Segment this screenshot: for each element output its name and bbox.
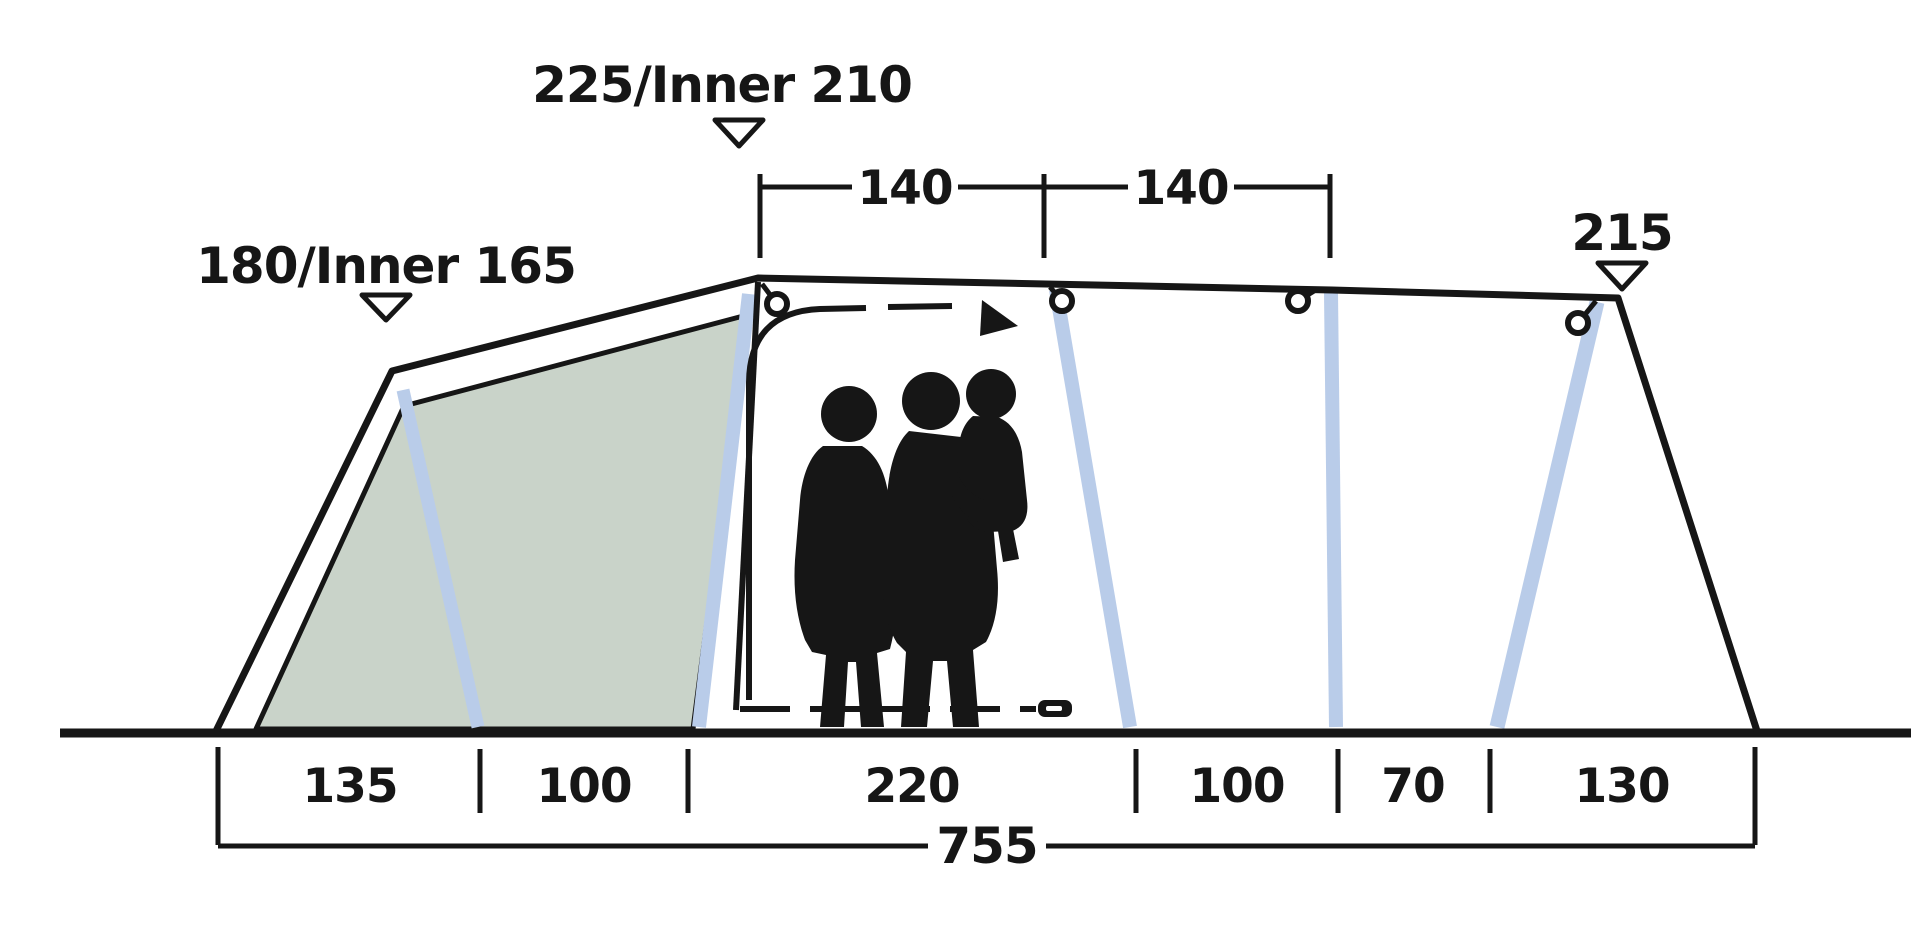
adult-2-head bbox=[902, 372, 960, 430]
child-leg bbox=[998, 529, 1019, 562]
adult-1-body bbox=[794, 446, 897, 727]
door-arc-arrowhead-icon bbox=[980, 300, 1018, 336]
left-height-marker-icon bbox=[362, 295, 410, 320]
floor-segment-label: 220 bbox=[864, 759, 959, 814]
threshold-toggle-slot bbox=[1046, 706, 1062, 711]
child-head bbox=[966, 369, 1016, 419]
floor-segment-label: 100 bbox=[1189, 759, 1284, 814]
guy-ring-icon bbox=[1288, 291, 1308, 311]
total-length-label: 755 bbox=[936, 817, 1037, 875]
floor-segment-label: 135 bbox=[302, 759, 397, 814]
left-height-label: 180/Inner 165 bbox=[196, 237, 576, 295]
tent-dimension-diagram: 225/Inner 210 180/Inner 165 215 140 140 … bbox=[0, 0, 1920, 941]
diagram-canvas: 225/Inner 210 180/Inner 165 215 140 140 … bbox=[0, 0, 1920, 941]
guy-ring-icon bbox=[1052, 291, 1072, 311]
pole-3 bbox=[1056, 290, 1130, 727]
people-silhouette bbox=[794, 369, 1027, 727]
inner-tent-group bbox=[256, 315, 747, 729]
floor-segment-label: 70 bbox=[1381, 759, 1444, 814]
guy-ring-icon bbox=[767, 294, 787, 314]
right-height-marker-icon bbox=[1598, 263, 1646, 289]
peak-height-label: 225/Inner 210 bbox=[532, 56, 912, 114]
pole-5 bbox=[1497, 302, 1597, 727]
roof-segment-label: 140 bbox=[1133, 161, 1228, 216]
inner-tent-panel bbox=[256, 315, 747, 729]
adult-1-head bbox=[821, 386, 877, 442]
ink-group bbox=[794, 300, 1072, 727]
pole-4 bbox=[1331, 293, 1336, 727]
peak-height-marker-icon bbox=[715, 120, 763, 146]
floor-segment-label: 100 bbox=[536, 759, 631, 814]
floor-segment-label: 130 bbox=[1574, 759, 1669, 814]
right-height-label: 215 bbox=[1571, 204, 1672, 262]
door-arc-dash bbox=[888, 306, 952, 307]
roof-segment-label: 140 bbox=[857, 161, 952, 216]
guy-ring-icon bbox=[1568, 313, 1588, 333]
